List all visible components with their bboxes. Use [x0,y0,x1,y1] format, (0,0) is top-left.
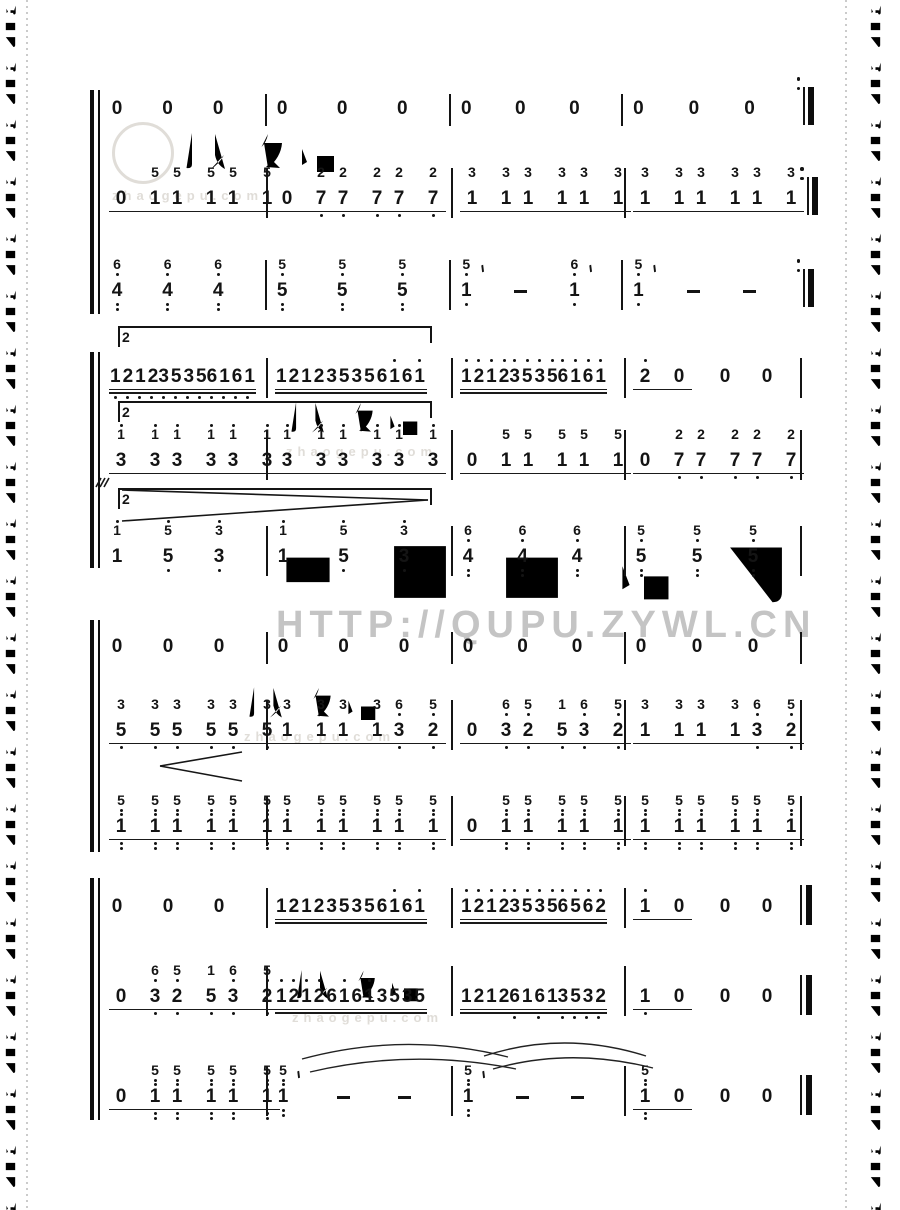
cjk-glyph-qu [869,418,882,431]
edge-watermark-char [4,491,17,504]
note-col: 61/// [567,251,581,301]
grace-digit: 1 [113,523,121,538]
grace-digit: 3 [263,697,271,712]
cjk-glyph-wang [4,491,17,504]
note-col: 5 [522,337,533,387]
note-digit: 1 [461,987,472,1007]
edge-watermark-char [869,1029,882,1042]
measure: 121235356562 [453,867,624,924]
grace-digit: 5 [339,793,347,808]
cjk-glyph-wang [869,320,882,333]
beam-line [221,1009,280,1011]
cjk-glyph-qu [869,817,882,830]
edge-watermark-char [869,605,882,618]
note-col: 51/// [276,1057,290,1107]
octave-dot [527,809,530,812]
octave-dot [401,273,404,276]
grace-digit: 5 [373,793,381,808]
edge-watermark-char [869,288,882,301]
octave-dot-cell [724,842,746,850]
note-digit: 5 [339,897,350,917]
note-digit: 2 [595,987,606,1007]
octave-dot [467,1079,470,1082]
note-digit: 1 [461,281,472,301]
note-digit: 1 [262,817,273,837]
octave-dot [154,1012,157,1015]
octave-dot [752,574,755,577]
note-digit: 5 [262,721,273,741]
note-col: 52 [517,691,539,741]
edge-watermark-char [869,776,882,789]
system-3-staff: 000000000000 [102,607,814,664]
note-unit: 0 [743,69,757,119]
octave-dot [790,746,793,749]
note-digit: 1 [640,1087,651,1107]
note-unit: 0 [567,69,581,119]
note-digit: 0 [692,637,703,657]
octave-dot-cell [388,842,410,850]
note-col: 51 [634,1057,656,1107]
octave-dot-cell [200,1012,222,1015]
unit-cols: 0 [110,867,124,917]
note-col: 2 [474,867,485,917]
grace-digit: 1 [558,697,566,712]
octave-dot [526,359,529,362]
note-digit: 0 [163,637,174,657]
unit-cols [337,1057,351,1107]
cjk-glyph-wang [4,719,17,732]
beam-line [460,473,519,475]
unit-cols: 1313 [388,421,444,471]
note-digit: 0 [515,99,526,119]
note-col [570,1057,584,1107]
beam-line [689,743,748,745]
note-col: 63 [222,957,244,1007]
note-digit: 6 [377,897,388,917]
octave-dot [644,847,647,850]
beam-line [221,1109,280,1111]
note-col: 31 [517,159,539,209]
edge-watermark-char [4,247,17,260]
octave-dot [432,842,435,845]
note-col: 51 [422,787,444,837]
octave-dots-row [110,1112,166,1120]
beam-line [275,389,326,391]
unit-cols: 0 [516,607,530,657]
note-col: 35 [200,691,222,741]
grace-digit: 5 [614,697,622,712]
cjk-glyph-wang [4,206,17,219]
note-unit: 0 [395,69,409,119]
note-digit: 1 [501,817,512,837]
note-col: 51 [690,787,712,837]
note-digit: 1 [364,987,375,1007]
octave-dot [678,842,681,845]
octave-dot [342,842,345,845]
octave-dot [401,303,404,306]
grace-digit: 5 [173,1063,181,1078]
note-unit: 5151 [222,787,278,850]
note-col: 13 [422,421,444,471]
note-digit: 1 [150,1087,161,1107]
measure-barline-end [800,337,802,398]
unit-cols: 1212 [461,337,509,387]
note-col [513,251,527,301]
octave-dot [154,842,157,845]
grace-digit: 3 [283,697,291,712]
octave-dots-row [517,842,573,850]
octave-dots-row [634,1012,690,1015]
unit-cols: 5151 [690,787,746,837]
grace-digit: 5 [429,793,437,808]
cjk-glyph-ci [4,231,17,244]
note-unit: 1212 [461,957,509,1014]
unit-cols: 051 [461,421,517,471]
note-unit: 5151 [276,787,332,850]
note-digit: 1 [569,281,580,301]
octave-dot [281,308,284,311]
note-unit: 0 [211,69,225,119]
edge-watermark-char [869,190,882,203]
note-digit: 1 [428,817,439,837]
note-unit: 5151 [332,787,388,850]
measure: 06352156352 [102,957,266,1015]
octave-dot [166,308,169,311]
note-digit: 1 [752,189,763,209]
note-digit: 3 [338,451,349,471]
note-col: 35 [144,691,166,741]
note-unit [743,251,757,301]
beam-line [516,839,575,841]
note-digit: 1 [172,817,183,837]
beam-line [387,839,446,841]
note-digit: 0 [278,637,289,657]
edge-watermark-char [869,231,882,244]
note-digit: 0 [720,367,731,387]
note-col: 33 [397,517,411,567]
note-col: 51 [607,787,629,837]
beam-line [109,1109,168,1111]
thick-bar [806,1075,812,1115]
unit-cols: 3131 [461,159,517,209]
octave-dot [398,214,401,217]
note-unit: 5215 [517,691,573,749]
note-col: 51 [276,787,298,837]
octave-dot-cell [397,569,411,572]
cjk-glyph-wang [4,947,17,960]
octave-dots-row [388,214,444,217]
unit-cols: 61/// [567,251,581,301]
measure: 05151515151 [453,421,624,474]
octave-dot [538,889,541,892]
note-digit: 6 [583,897,594,917]
note-digit: 3 [116,451,127,471]
cjk-glyph-wang [4,776,17,789]
note-digit: 5 [277,281,288,301]
system-1-staff: 64646455555551///61///51/// [102,251,814,311]
note-col: 51 [573,421,595,471]
octave-dot [696,539,699,542]
note-unit: 2727 [388,159,444,217]
octave-dot-cell [517,746,539,749]
beam-line [572,839,631,841]
edge-watermark-char [869,304,882,317]
beam-line [165,1109,224,1111]
beam-line [460,389,511,391]
cjk-glyph-ci [4,573,17,586]
cjk-glyph-qu [4,475,17,488]
note-digit: 1 [523,451,534,471]
octave-dot [176,847,179,850]
octave-dot [320,809,323,812]
note-col: 0 [461,787,483,837]
cjk-glyph-qu [869,133,882,146]
note-col: 27 [366,159,388,209]
octave-dot [696,569,699,572]
octave-dot [467,539,470,542]
octave-dot [281,303,284,306]
note-digit: 3 [158,367,169,387]
note-digit: 5 [228,721,239,741]
note-unit: 5151 [573,787,629,850]
note-digit: 3 [228,451,239,471]
grace-digit: 5 [151,1063,159,1078]
cjk-glyph-qu [869,874,882,887]
grace-digit: 1 [429,427,437,442]
note-digit: 7 [730,451,741,471]
note-digit: 1 [206,189,217,209]
note-unit: 33 [397,517,411,572]
octave-dot [734,847,737,850]
note-col: 6 [534,957,545,1007]
note-digit: 2 [428,721,439,741]
system-start-thin-bar [98,620,100,852]
grace-digit: 5 [731,793,739,808]
thick-bar [808,87,814,125]
note-col [397,1057,411,1107]
note-unit: 3535 [166,691,222,749]
thin-bar [800,885,802,925]
note-unit: 6161 [509,957,557,1019]
note-unit: 0 [161,69,175,119]
note-col: 55 [690,517,704,567]
volta-label: 2 [122,329,130,345]
octave-dot-cell [276,842,298,850]
octave-dot [210,1012,213,1015]
unit-cols: 5151 [573,421,629,471]
note-digit: 3 [316,451,327,471]
note-col: 0 [760,337,774,387]
note-digit: 1 [394,817,405,837]
note-digit: 0 [633,99,644,119]
note-col: 51 [495,421,517,471]
measure: 646464 [102,251,265,311]
grace-digit: 5 [787,793,795,808]
note-col: 51/// [631,251,645,301]
note-digit: 0 [674,1087,685,1107]
note-unit: 64 [161,251,175,311]
note-digit: 5 [364,367,375,387]
measure: 51000 [626,1057,800,1120]
cjk-glyph-wang [869,491,882,504]
note-digit: 0 [338,637,349,657]
edge-watermark-char [4,890,17,903]
note-col: 27 [724,421,746,471]
octave-dot [120,842,123,845]
note-digit: 1 [389,367,400,387]
unit-cols: 3131 [276,691,332,741]
cjk-glyph-qu [869,1045,882,1058]
octave-dot [138,396,141,399]
octave-dot-cell [461,1109,475,1117]
octave-dots-row [631,303,645,306]
grace-digit: 3 [731,165,739,180]
cjk-glyph-ci [4,801,17,814]
edge-watermark-char [869,744,882,757]
note-unit: 5151 [166,1057,222,1120]
note-col: 6 [326,957,337,1007]
unit-cols: 55 [161,517,175,567]
note-digit: 3 [534,897,545,917]
octave-dot [644,1117,647,1120]
note-digit: 1 [613,817,624,837]
octave-dot [126,396,129,399]
edge-watermark-char [4,532,17,545]
note-col: 0 [275,69,289,119]
grace-digit: 5 [317,793,325,808]
octave-dot [790,476,793,479]
edge-watermark-char [869,532,882,545]
note-unit: 063 [461,691,517,749]
note-digit: 2 [289,987,300,1007]
unit-cols: 3131 [746,159,802,209]
grace-digit: 3 [697,165,705,180]
note-digit: 3 [352,367,363,387]
octave-dot [198,396,201,399]
octave-dot [521,569,524,572]
note-col: 51 [310,787,332,837]
octave-dot [617,847,620,850]
measure: 515151515151 [268,787,451,850]
note-col: 1 [461,957,472,1007]
note-unit: 64 [110,251,124,311]
grace-digit: 5 [340,523,348,538]
cjk-glyph-ci [4,972,17,985]
grace-digit: 5 [524,427,532,442]
note-unit: 1212 [461,337,509,394]
unit-cols: 55 [746,517,760,567]
note-col: 1 [364,957,375,1007]
edge-watermark-char [4,1086,17,1099]
note-digit: 1 [557,189,568,209]
note-digit: 5 [338,547,349,567]
edge-watermark-char [869,1004,882,1017]
edge-watermark-char [869,890,882,903]
note-col: 2 [499,957,510,1007]
measure: 131313131313 [268,421,451,474]
volta-bracket: 2 [118,326,432,348]
octave-dot [756,476,759,479]
note-col: 0 [570,607,584,657]
grace-digit: 5 [462,257,470,272]
note-digit: 0 [337,99,348,119]
note-digit: 6 [509,987,520,1007]
octave-dot [282,1114,285,1117]
beam-line [325,919,376,921]
octave-dot [154,847,157,850]
grace-digit: 3 [173,697,181,712]
octave-dot [537,1016,540,1019]
note-col: 0 [516,607,530,657]
unit-cols: 0 [718,957,732,1007]
volta-left-tick [118,490,120,509]
octave-dot [266,847,269,850]
note-unit: 0 [516,607,530,657]
note-col: 35 [110,691,132,741]
octave-dot [573,1016,576,1019]
note-col: 1 [634,957,656,1007]
octave-dot [210,842,213,845]
octave-dots-row [166,1112,222,1120]
octave-dot-cell [570,1016,580,1019]
note-digit: 1 [752,817,763,837]
note-col: 3 [558,957,569,1007]
unit-cols: 027 [634,421,690,471]
unit-cols: 5151 [634,787,690,837]
octave-dot-cell [310,214,332,217]
octave-dot [432,713,435,716]
note-col: 1 [461,337,472,387]
edge-watermark-char [4,947,17,960]
edge-watermark-char [869,915,882,928]
octave-dot [376,809,379,812]
note-digit: 1 [730,817,741,837]
note-col: 0 [718,337,732,387]
octave-dot [465,273,468,276]
unit-cols: 55 [690,517,704,567]
note-digit: 0 [397,99,408,119]
cjk-glyph-wang [869,1175,882,1188]
cjk-glyph-wang [4,263,17,276]
measure: 131313131313 [102,421,266,474]
note-col: 5 [339,867,350,917]
unit-cols: 5151 [388,787,444,837]
note-digit: 6 [402,897,413,917]
cjk-glyph-wang [869,1061,882,1074]
cjk-glyph-ci [4,402,17,415]
octave-dot [401,308,404,311]
note-col: 0 [161,69,175,119]
unit-cols: 0 [513,69,527,119]
grace-digit: 5 [502,793,510,808]
note-digit: 3 [150,987,161,1007]
note-digit: 5 [522,897,533,917]
note-digit: 2 [613,721,624,741]
note-unit: 3535 [509,867,557,924]
grace-digit: 5 [753,793,761,808]
note-digit: 1 [696,817,707,837]
unit-cols: 5151 [746,787,802,837]
cjk-glyph-qu [4,703,17,716]
octave-dot [756,809,759,812]
note-col: 2 [595,867,606,917]
note-col: 3 [583,957,594,1007]
octave-dot-cell [275,303,289,311]
note-digit: 5 [171,367,182,387]
unit-cols: 51/// [631,251,645,301]
note-col: 0 [718,957,732,1007]
note-unit: 1212 [276,957,324,1014]
